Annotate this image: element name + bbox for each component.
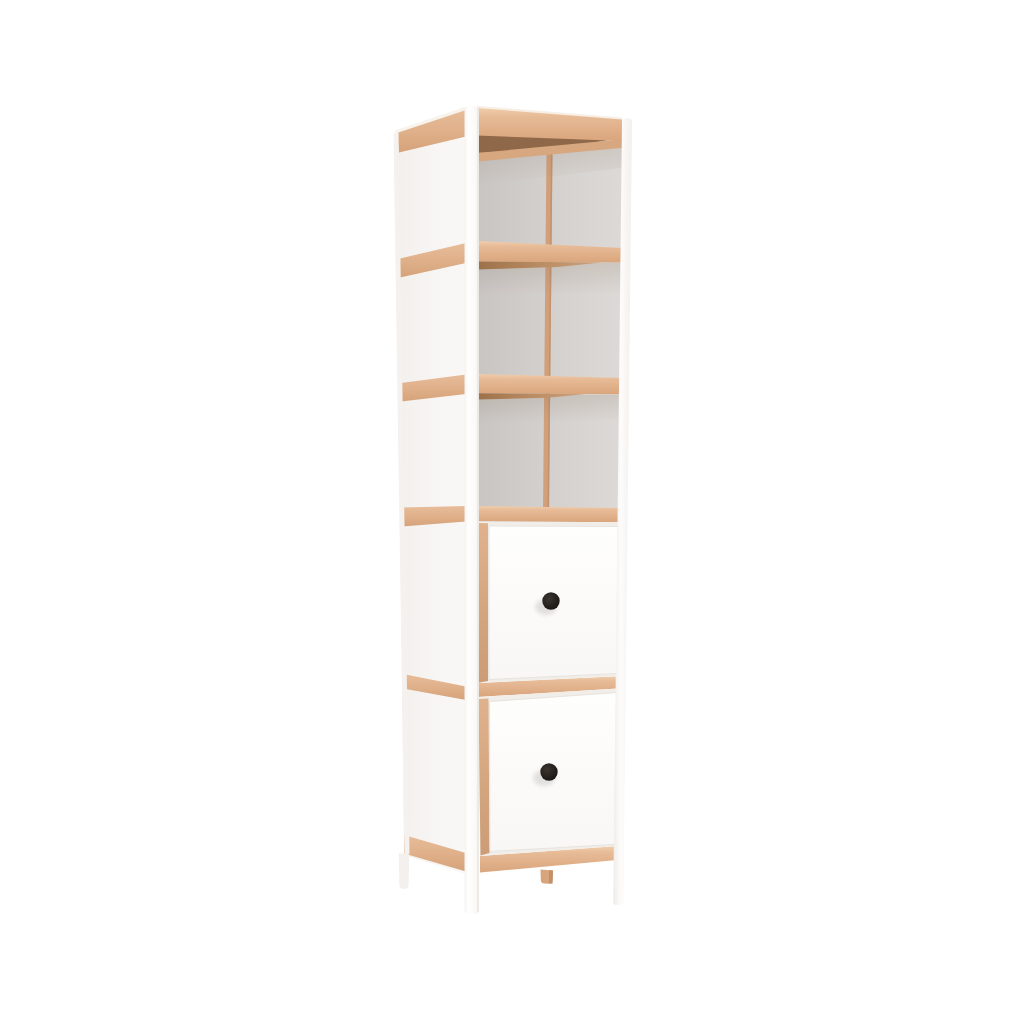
drawer-1 <box>477 521 622 683</box>
interior <box>472 128 626 522</box>
drawer-1-knob <box>542 592 559 609</box>
rail-drawer-top <box>477 506 622 522</box>
drawer-1-side-strip <box>478 523 488 683</box>
front-left-post <box>465 106 480 914</box>
side-panel <box>394 107 467 889</box>
back-left-leg <box>399 853 410 889</box>
product-render <box>0 0 1024 1024</box>
canvas <box>0 0 1024 1024</box>
center-foot-shade <box>549 870 553 884</box>
drawer-2 <box>478 688 622 856</box>
drawer-2-knob <box>540 763 557 780</box>
